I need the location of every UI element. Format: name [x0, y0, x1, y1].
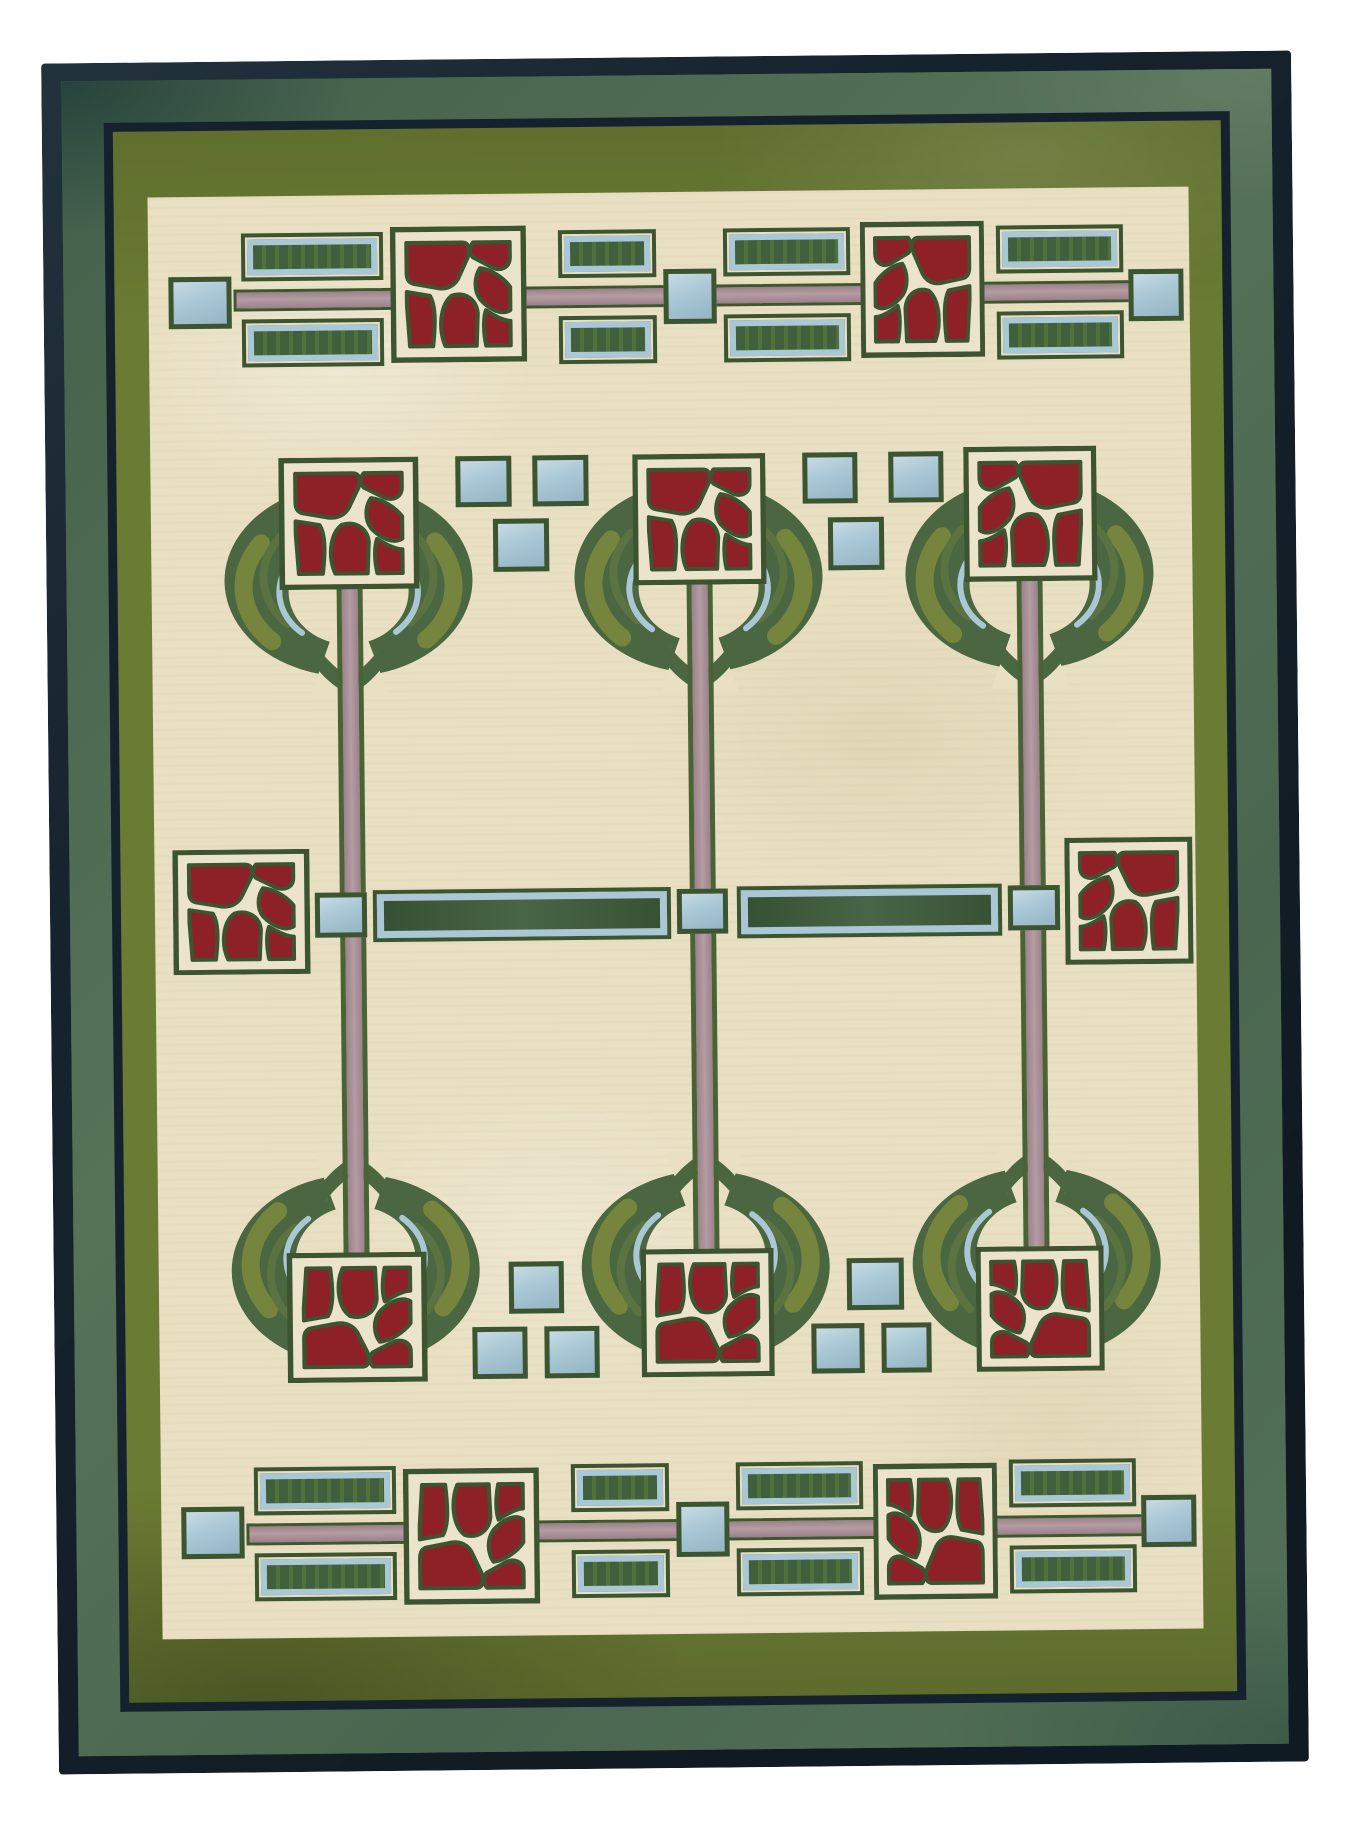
blue-square [1128, 269, 1184, 322]
rose-motif [873, 1463, 998, 1600]
blue-square [1008, 885, 1060, 931]
green-rect [242, 318, 384, 367]
rose-motif [860, 221, 985, 358]
rose-motif [976, 1246, 1105, 1372]
blue-square [315, 892, 367, 938]
green-rect [737, 1547, 864, 1596]
green-rect [571, 1463, 669, 1512]
green-rect [724, 313, 851, 362]
blue-square [663, 269, 717, 325]
rug [41, 51, 1309, 1775]
blue-square [847, 1258, 905, 1311]
rose-motif [641, 1248, 775, 1377]
rose-motif [287, 1252, 428, 1383]
green-rect [559, 315, 657, 364]
rose-graphic [963, 446, 1097, 582]
green-rect [1010, 1544, 1137, 1593]
motif-layer [41, 51, 1309, 1775]
blue-square [811, 1323, 865, 1374]
green-rect [255, 1552, 397, 1601]
rose-motif [172, 849, 310, 975]
rose-graphic [641, 1248, 775, 1377]
green-rect [996, 224, 1123, 273]
blue-square [802, 452, 858, 504]
blue-square [544, 1326, 600, 1379]
rose-graphic [860, 221, 985, 358]
rose-graphic [403, 1467, 540, 1604]
rose-graphic [976, 1246, 1105, 1372]
rose-graphic [632, 453, 766, 585]
rose-motif [278, 457, 419, 590]
rose-graphic [278, 457, 419, 590]
blue-square [677, 888, 728, 934]
green-bar [737, 884, 1003, 939]
green-rect [572, 1549, 670, 1598]
rose-motif [963, 446, 1097, 582]
rose-graphic [172, 849, 310, 975]
blue-square [472, 1327, 528, 1380]
rose-graphic [1064, 837, 1193, 965]
green-rect [1009, 1458, 1136, 1507]
blue-square [828, 517, 885, 571]
blue-square [181, 1507, 245, 1560]
blue-square [532, 455, 589, 507]
green-rect [736, 1461, 863, 1510]
green-rect [254, 1466, 396, 1515]
green-rect [997, 310, 1124, 359]
rose-graphic [287, 1252, 428, 1383]
rose-motif [632, 453, 766, 585]
green-rect [558, 229, 656, 278]
photo-canvas [0, 0, 1346, 1825]
rose-motif [1064, 837, 1193, 965]
rose-motif [403, 1467, 540, 1604]
blue-square [509, 1261, 565, 1314]
blue-square [168, 277, 232, 330]
green-rect [241, 232, 383, 281]
rose-motif [390, 226, 527, 363]
blue-square [455, 456, 512, 508]
blue-square [493, 518, 550, 572]
green-rect [723, 227, 850, 276]
rose-graphic [390, 226, 527, 363]
green-bar [373, 887, 672, 942]
blue-square [676, 1501, 730, 1557]
blue-square [1141, 1495, 1197, 1548]
blue-square [888, 451, 944, 503]
blue-square [881, 1322, 932, 1373]
rose-graphic [873, 1463, 998, 1600]
